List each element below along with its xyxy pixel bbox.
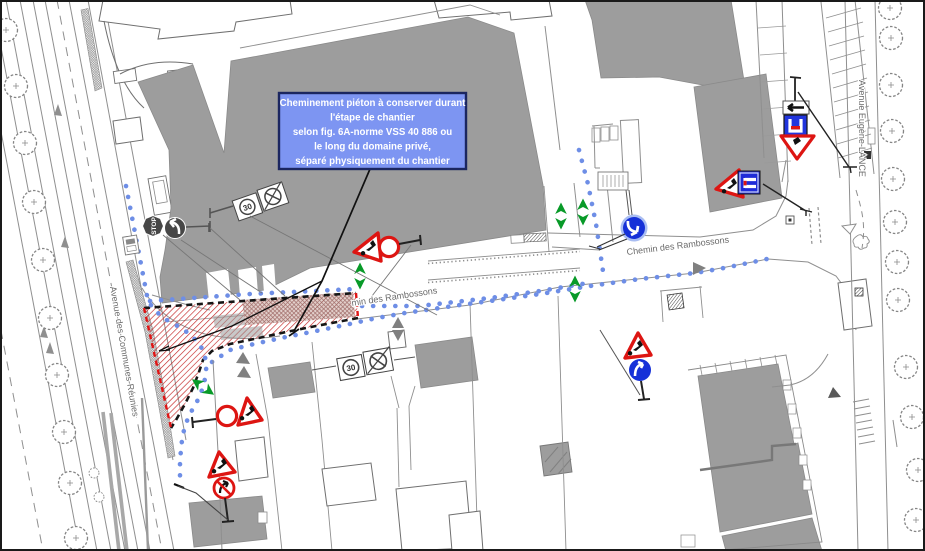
svg-text:séparé physiquement du chantie: séparé physiquement du chantier	[295, 156, 450, 167]
svg-text:Cheminement piéton à conserver: Cheminement piéton à conserver durant	[280, 98, 466, 109]
svg-text:Avenue Eugène-LANCE: Avenue Eugène-LANCE	[857, 80, 867, 177]
svg-text:STOP: STOP	[151, 217, 158, 235]
svg-text:le long du domaine privé,: le long du domaine privé,	[314, 142, 431, 153]
svg-text:selon fig. 6A-norme VSS 40 886: selon fig. 6A-norme VSS 40 886 ou	[293, 127, 452, 138]
svg-text:l'étape de chantier: l'étape de chantier	[330, 113, 415, 124]
